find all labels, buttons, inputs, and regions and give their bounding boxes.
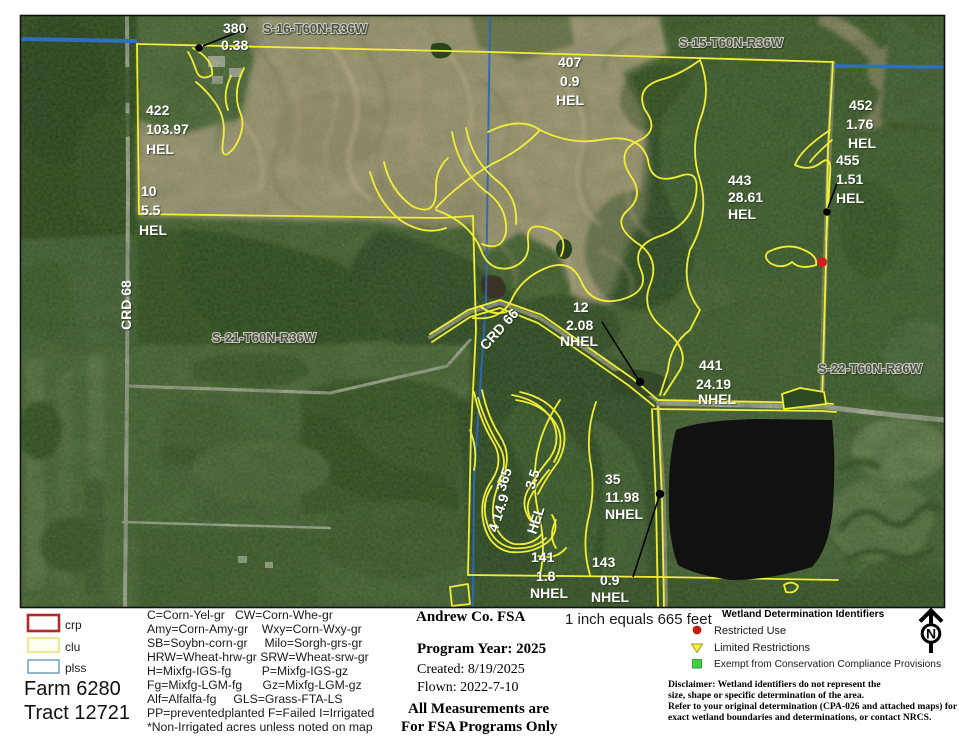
svg-text:10: 10 xyxy=(141,183,157,199)
svg-text:plss: plss xyxy=(65,661,86,675)
svg-text:crp: crp xyxy=(65,618,82,632)
svg-text:Restricted Use: Restricted Use xyxy=(714,625,786,637)
svg-text:HEL: HEL xyxy=(848,135,876,151)
svg-text:HEL: HEL xyxy=(728,206,756,222)
svg-text:0.9: 0.9 xyxy=(600,572,620,588)
svg-text:HEL: HEL xyxy=(556,92,584,108)
svg-text:H=Mixfg-IGS-fg P=Mixfg: H=Mixfg-IGS-fg P=Mixfg-IGS-gz xyxy=(147,664,348,678)
svg-text:NHEL: NHEL xyxy=(530,585,569,601)
svg-text:C=Corn-Yel-gr CW=Corn-Whe-gr: C=Corn-Yel-gr CW=Corn-Whe-gr xyxy=(147,608,333,622)
svg-text:For FSA Programs Only: For FSA Programs Only xyxy=(401,719,558,735)
svg-text:407: 407 xyxy=(558,54,582,70)
svg-text:HEL: HEL xyxy=(139,222,167,238)
svg-text:Farm 6280: Farm 6280 xyxy=(24,678,121,700)
svg-text:Disclaimer: Wetland identifier: Disclaimer: Wetland identifiers do not r… xyxy=(668,679,881,690)
svg-text:Limited Restrictions: Limited Restrictions xyxy=(714,642,810,654)
svg-text:All Measurements are: All Measurements are xyxy=(408,701,549,717)
svg-text:NHEL: NHEL xyxy=(560,333,599,349)
svg-text:28.61: 28.61 xyxy=(728,189,763,205)
svg-text:NHEL: NHEL xyxy=(605,506,644,522)
svg-text:24.19: 24.19 xyxy=(696,376,731,392)
svg-text:2.08: 2.08 xyxy=(566,317,593,333)
svg-text:441: 441 xyxy=(699,357,723,373)
svg-text:422: 422 xyxy=(146,102,170,118)
svg-text:Program Year: 2025: Program Year: 2025 xyxy=(417,641,546,657)
svg-text:CRD 68: CRD 68 xyxy=(118,280,134,330)
svg-text:Amy=Corn-Amy-gr Wxy=Corn-Wx: Amy=Corn-Amy-gr Wxy=Corn-Wxy-gr xyxy=(147,622,362,636)
svg-text:443: 443 xyxy=(728,172,752,188)
svg-text:S-16-T60N-R36W: S-16-T60N-R36W xyxy=(263,21,368,36)
svg-text:Alf=Alfalfa-fg GLS=Grass-F: Alf=Alfalfa-fg GLS=Grass-FTA-LS xyxy=(147,692,343,706)
svg-text:12: 12 xyxy=(573,299,589,315)
svg-text:1.51: 1.51 xyxy=(836,171,863,187)
svg-text:NHEL: NHEL xyxy=(591,589,630,605)
svg-text:HEL: HEL xyxy=(836,190,864,206)
svg-text:452: 452 xyxy=(849,97,873,113)
svg-text:PP=preventedplanted F=Failed I: PP=preventedplanted F=Failed I=Irrigated xyxy=(147,706,374,720)
svg-text:1 inch equals 665 feet: 1 inch equals 665 feet xyxy=(565,611,713,628)
svg-text:HEL: HEL xyxy=(146,141,174,157)
svg-text:141: 141 xyxy=(531,549,555,565)
svg-text:380: 380 xyxy=(223,20,247,36)
svg-text:S-21-T60N-R36W: S-21-T60N-R36W xyxy=(212,330,317,345)
svg-text:Fg=Mixfg-LGM-fg Gz=Mixfg-: Fg=Mixfg-LGM-fg Gz=Mixfg-LGM-gz xyxy=(147,678,362,692)
svg-text:Wetland Determination Identifi: Wetland Determination Identifiers xyxy=(722,609,885,620)
svg-text:clu: clu xyxy=(65,640,80,654)
svg-text:NHEL: NHEL xyxy=(698,391,737,407)
svg-text:11.98: 11.98 xyxy=(605,489,639,505)
svg-text:0.38: 0.38 xyxy=(221,37,248,53)
svg-text:*Non-Irrigated acres unless no: *Non-Irrigated acres unless noted on map xyxy=(147,720,373,734)
svg-text:455: 455 xyxy=(836,152,860,168)
svg-text:Created: 8/19/2025: Created: 8/19/2025 xyxy=(417,662,525,677)
svg-text:0.9: 0.9 xyxy=(560,73,580,89)
svg-text:Exempt from Conservation Compl: Exempt from Conservation Compliance Prov… xyxy=(714,659,941,670)
svg-text:Flown: 2022-7-10: Flown: 2022-7-10 xyxy=(417,680,519,695)
svg-text:HRW=Wheat-hrw-gr SRW=Wheat-srw: HRW=Wheat-hrw-gr SRW=Wheat-srw-gr xyxy=(147,650,369,664)
svg-text:Andrew Co. FSA: Andrew Co. FSA xyxy=(416,609,525,625)
svg-text:Refer to your original determi: Refer to your original determination (CP… xyxy=(668,701,958,712)
svg-text:143: 143 xyxy=(592,554,616,570)
svg-text:5.5: 5.5 xyxy=(141,202,161,218)
svg-text:35: 35 xyxy=(605,471,621,487)
svg-text:N: N xyxy=(926,626,936,642)
svg-text:1.8: 1.8 xyxy=(536,568,556,584)
svg-text:SB=Soybn-corn-gr Milo=Sorg: SB=Soybn-corn-gr Milo=Sorgh-grs-gr xyxy=(147,636,362,650)
svg-text:exact wetland boundaries and d: exact wetland boundaries and determinati… xyxy=(668,712,931,723)
svg-text:size, shape or specific determ: size, shape or specific determination of… xyxy=(668,690,864,701)
svg-text:Tract 12721: Tract 12721 xyxy=(24,702,130,724)
svg-text:103.97: 103.97 xyxy=(146,121,189,137)
svg-text:S-15-T60N-R36W: S-15-T60N-R36W xyxy=(679,35,784,50)
svg-text:1.76: 1.76 xyxy=(846,116,873,132)
svg-text:S-22-T60N-R36W: S-22-T60N-R36W xyxy=(818,361,923,376)
